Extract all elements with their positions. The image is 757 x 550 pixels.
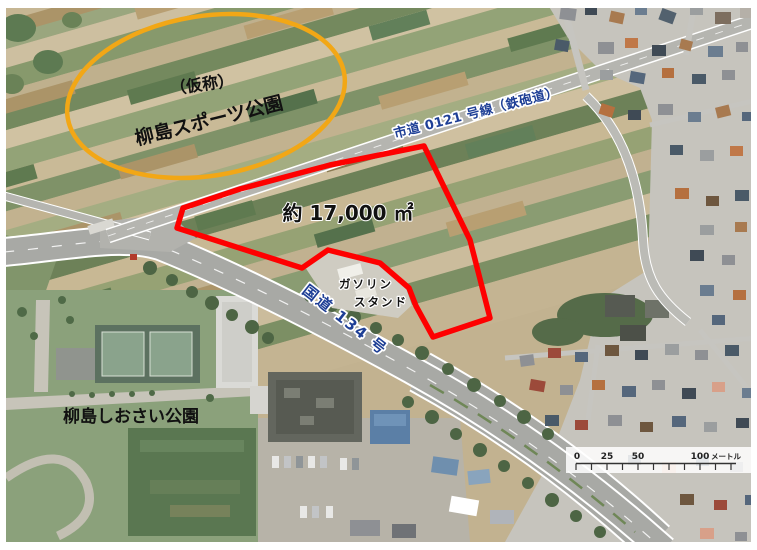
scale-label-50: 50 (632, 452, 645, 462)
aerial-map-figure: （仮称） 柳島スポーツ公園 約 17,000 ㎡ 市道 0121 号線（鉄砲道）… (0, 0, 757, 550)
red-roof-hut (130, 254, 137, 260)
scale-label-25: 25 (601, 452, 614, 462)
scale-label-0: 0 (574, 452, 580, 462)
site-area-label: 約 17,000 ㎡ (282, 201, 413, 225)
gas-station-label-line1: ガソリン (339, 277, 393, 291)
scale-bar: 0 25 50 100 メートル (566, 447, 751, 473)
existing-park-label: 柳島しおさい公園 (63, 406, 199, 427)
scale-unit-label: メートル (711, 452, 741, 461)
gas-station-label-line2: スタンド (354, 295, 408, 309)
aerial-photo-canvas: （仮称） 柳島スポーツ公園 約 17,000 ㎡ 市道 0121 号線（鉄砲道）… (0, 0, 757, 550)
scale-label-100: 100 (691, 452, 710, 462)
